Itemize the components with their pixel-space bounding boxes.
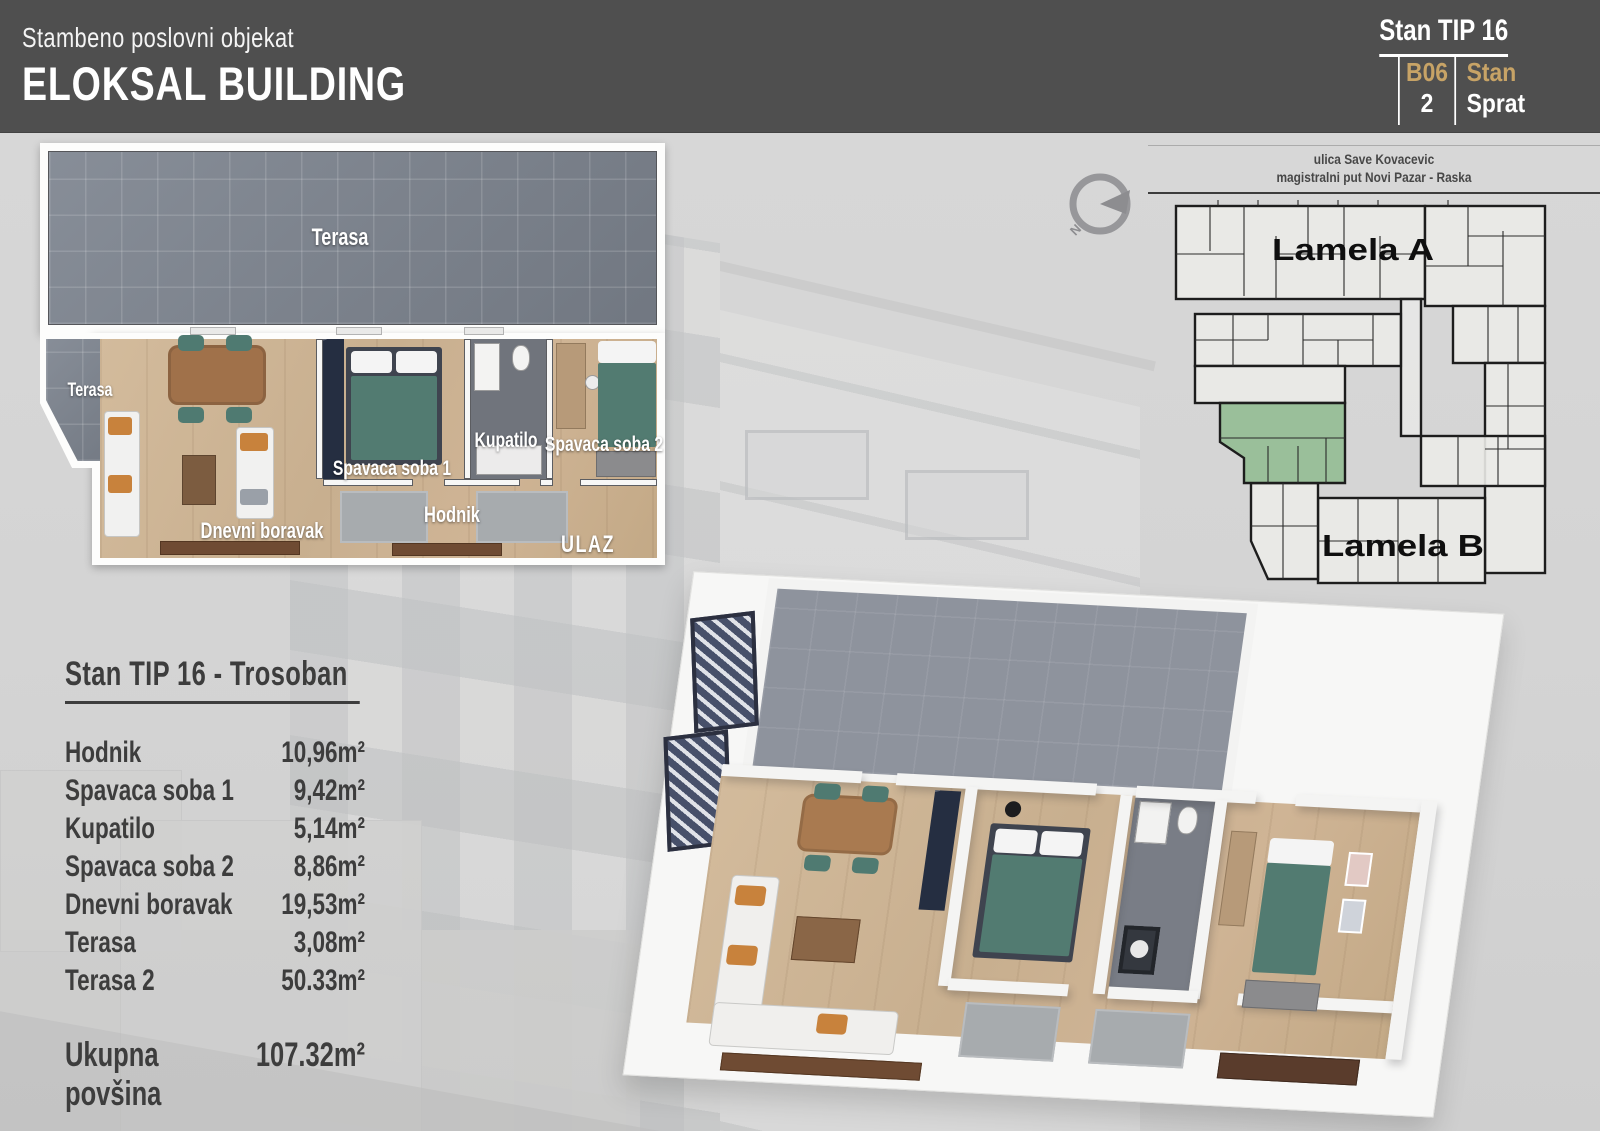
dining-chair-3d xyxy=(803,854,831,871)
header-bar: Stambeno poslovni objekat ELOKSAL BUILDI… xyxy=(0,0,1600,132)
dining-chair-3d xyxy=(861,785,889,802)
room-label: Kupatilo xyxy=(65,810,155,848)
site-plan-drawing: Lamela A Lamela B xyxy=(1148,196,1600,588)
coffee-table-3d xyxy=(791,916,861,963)
room-label: Spavaca soba 1 xyxy=(65,772,234,810)
bathroom-sink xyxy=(474,343,500,391)
unit-type-label: Stan TIP 16 xyxy=(1379,14,1508,57)
room-label: Terasa 2 xyxy=(65,962,155,1000)
total-value: 107.32m² xyxy=(256,1036,365,1114)
dining-chair xyxy=(226,407,252,423)
room-area: 50.33m² xyxy=(281,962,365,1000)
dining-chair-3d xyxy=(851,857,879,874)
bed-1-blanket-3d xyxy=(979,854,1083,956)
bed-1-blanket xyxy=(351,376,437,460)
bg-balcony xyxy=(905,470,1029,540)
sink-3d xyxy=(1134,801,1172,844)
compass-icon: N xyxy=(1064,170,1136,253)
label-hallway: Hodnik xyxy=(424,502,480,528)
desk xyxy=(556,343,586,429)
street-line-1: ulica Save Kovacevic xyxy=(1182,150,1566,168)
project-title: ELOKSAL BUILDING xyxy=(22,56,406,111)
bed-1-pillow-3d xyxy=(993,828,1038,854)
label-bedroom2: Spavaca soba 2 xyxy=(545,433,663,457)
wall xyxy=(580,479,657,486)
lamela-a-label: Lamela A xyxy=(1272,232,1434,267)
bed-1-pillow-3d xyxy=(1039,831,1084,857)
table-row: Hodnik 10,96m² xyxy=(65,734,365,772)
floor-number: 2 xyxy=(1403,88,1451,119)
label-living: Dnevni boravak xyxy=(201,518,324,544)
wall xyxy=(546,339,553,479)
area-table: Stan TIP 16 - Trosoban Hodnik 10,96m² Sp… xyxy=(65,655,365,1114)
dining-table-3d xyxy=(796,793,899,856)
terrace-door xyxy=(190,327,236,335)
table-row: Spavaca soba 2 8,86m² xyxy=(65,848,365,886)
lattice-panel xyxy=(690,611,759,733)
table-row: Spavaca soba 1 9,42m² xyxy=(65,772,365,810)
label-entrance: ULAZ xyxy=(561,531,615,559)
street-line-2: magistralni put Novi Pazar - Raska xyxy=(1182,168,1566,186)
cabinet-3d xyxy=(1242,980,1321,1012)
project-subtitle: Stambeno poslovni objekat xyxy=(22,22,294,54)
wall xyxy=(464,339,471,479)
room-area: 19,53m² xyxy=(281,886,365,924)
unit-values-column: B06 2 xyxy=(1398,55,1456,125)
room-label: Hodnik xyxy=(65,734,141,772)
wall xyxy=(316,339,323,479)
table-row: Kupatilo 5,14m² xyxy=(65,810,365,848)
rug-3d xyxy=(1088,1009,1191,1069)
bed-1-pillow xyxy=(396,351,437,373)
room-area: 5,14m² xyxy=(294,810,365,848)
room-label: Dnevni boravak xyxy=(65,886,233,924)
room-area: 3,08m² xyxy=(294,924,365,962)
dining-chair xyxy=(178,407,204,423)
site-plan: ulica Save Kovacevic magistralni put Nov… xyxy=(1148,145,1600,588)
label-terrace-main: Terasa xyxy=(312,224,369,252)
pillow-gray xyxy=(240,489,268,505)
table-row: Dnevni boravak 19,53m² xyxy=(65,886,365,924)
terrace-3d xyxy=(752,589,1247,793)
pillow-orange-3d xyxy=(726,945,759,966)
label-bathroom: Kupatilo xyxy=(475,429,538,453)
unit-labels-column: Stan Sprat xyxy=(1456,55,1530,125)
terrace-door xyxy=(464,327,504,335)
plan3d-slab xyxy=(623,571,1505,1117)
street-labels: ulica Save Kovacevic magistralni put Nov… xyxy=(1148,145,1600,194)
rug-3d xyxy=(958,1002,1061,1062)
pillow-orange xyxy=(108,417,132,435)
label-terrace-side: Terasa xyxy=(68,380,113,402)
floor-plan-3d xyxy=(610,551,1545,1131)
rug xyxy=(340,491,428,543)
unit-number: B06 xyxy=(1403,57,1451,88)
table-row: Terasa 2 50.33m² xyxy=(65,962,365,1000)
bg-balcony xyxy=(745,430,869,500)
room-area: 10,96m² xyxy=(281,734,365,772)
rug xyxy=(476,491,568,543)
sofa-3d xyxy=(708,1002,899,1055)
bed-2-pillow xyxy=(598,341,656,363)
table-row: Terasa 3,08m² xyxy=(65,924,365,962)
room-area: 9,42m² xyxy=(294,772,365,810)
wall-art-3d xyxy=(1338,899,1367,934)
wall xyxy=(540,479,553,486)
hall-console xyxy=(392,543,502,556)
pillow-orange xyxy=(108,475,132,493)
floor-label: Sprat xyxy=(1467,88,1530,119)
bed-1-pillow xyxy=(351,351,392,373)
room-area: 8,86m² xyxy=(294,848,365,886)
pillow-orange-3d xyxy=(816,1013,849,1034)
area-table-title: Stan TIP 16 - Trosoban xyxy=(65,655,360,704)
dining-chair xyxy=(226,335,252,351)
dining-table xyxy=(168,345,266,405)
label-bedroom1: Spavaca soba 1 xyxy=(333,457,451,481)
terrace-door xyxy=(336,327,382,335)
pillow-orange xyxy=(240,433,268,451)
pillow-orange-3d xyxy=(734,885,767,906)
lamela-b-label: Lamela B xyxy=(1322,528,1484,563)
wall xyxy=(444,479,520,486)
unit-number-label: Stan xyxy=(1467,57,1530,88)
total-label: Ukupna povšina xyxy=(65,1036,229,1114)
wall-art-3d xyxy=(1344,852,1373,887)
hall-console-3d xyxy=(1217,1052,1360,1085)
toilet xyxy=(512,345,530,371)
floor-plan-2d: Terasa Terasa Dnevni boravak Spavaca sob… xyxy=(40,143,665,575)
room-label: Terasa xyxy=(65,924,136,962)
dining-chair xyxy=(178,335,204,351)
room-label: Spavaca soba 2 xyxy=(65,848,234,886)
total-row: Ukupna povšina 107.32m² xyxy=(65,1036,365,1114)
coffee-table xyxy=(182,455,216,505)
unit-info-block: B06 2 Stan Sprat xyxy=(1398,55,1530,125)
brochure-page: Stambeno poslovni objekat ELOKSAL BUILDI… xyxy=(0,0,1600,1131)
tv-console-3d xyxy=(720,1052,922,1080)
dining-chair-3d xyxy=(813,783,841,800)
